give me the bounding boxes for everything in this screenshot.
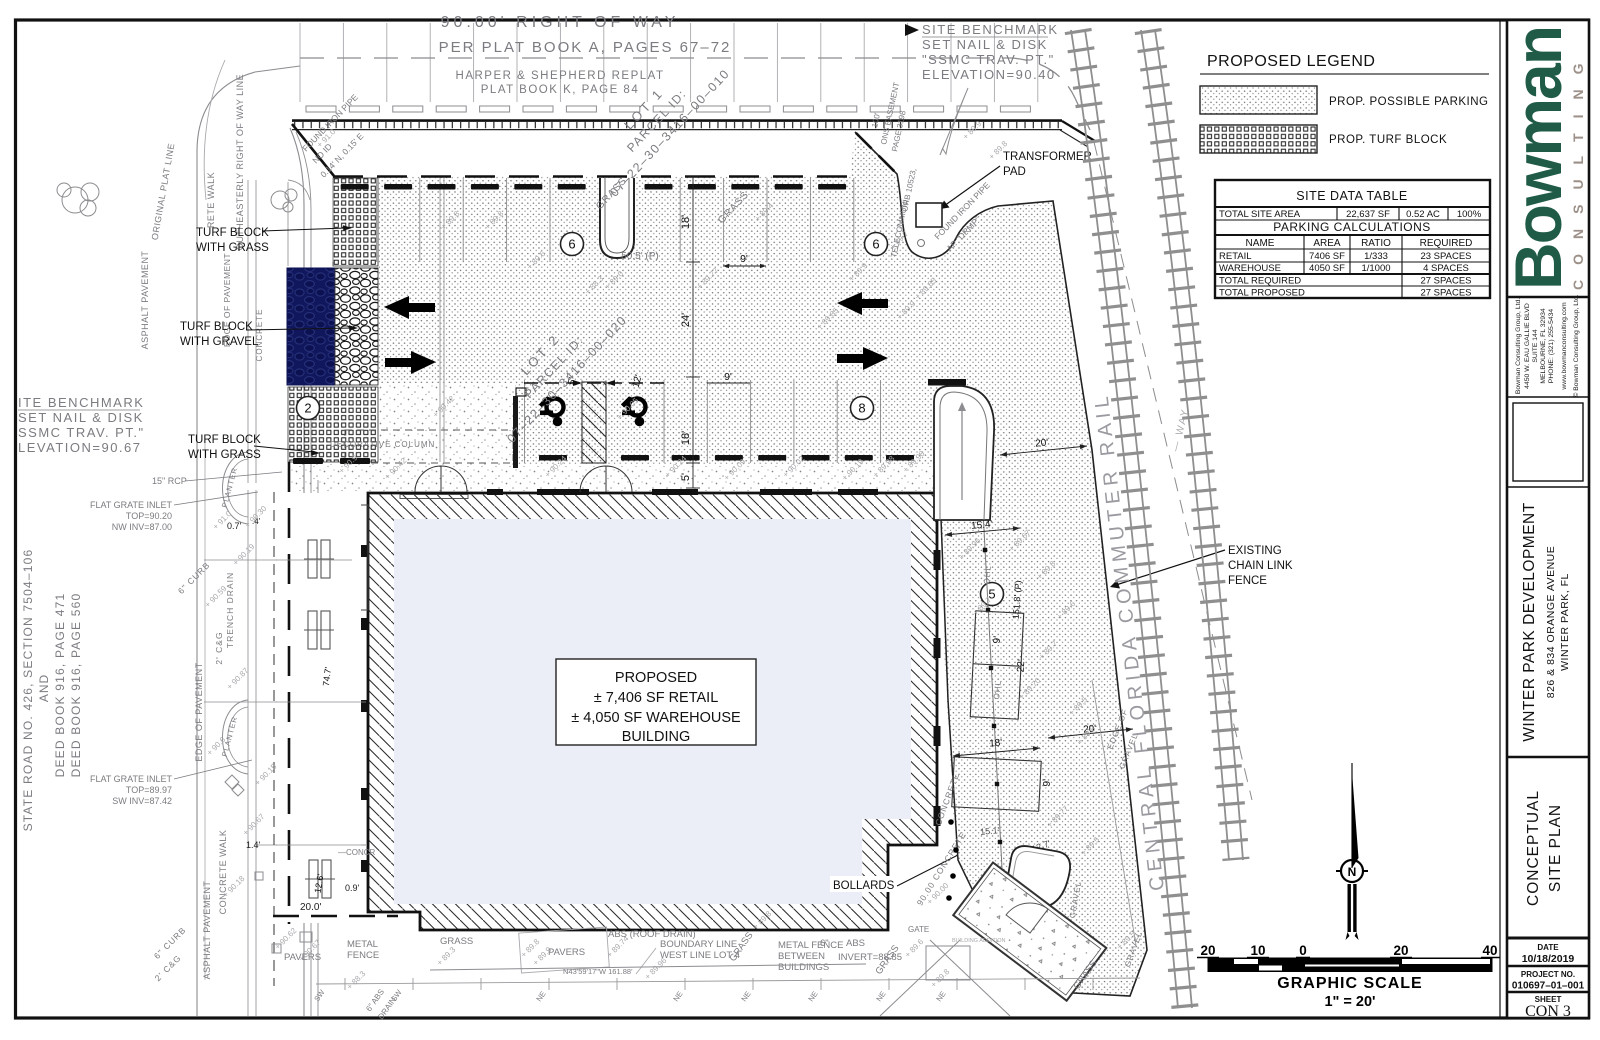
svg-text:2' C&G: 2' C&G bbox=[214, 631, 224, 664]
svg-text:ITE BENCHMARK: ITE BENCHMARK bbox=[18, 395, 144, 410]
svg-text:RETE WALK: RETE WALK bbox=[206, 172, 216, 228]
svg-text:SITE DATA TABLE: SITE DATA TABLE bbox=[1296, 189, 1407, 203]
svg-text:± 7,406 SF RETAIL: ± 7,406 SF RETAIL bbox=[594, 690, 719, 706]
svg-text:MELBOURNE, FL 32934: MELBOURNE, FL 32934 bbox=[1540, 308, 1547, 384]
svg-text:PROP. TURF BLOCK: PROP. TURF BLOCK bbox=[1329, 134, 1447, 146]
svg-text:20: 20 bbox=[1393, 943, 1408, 958]
svg-text:OUTHEASTERLY RIGHT OF WAY LINE: OUTHEASTERLY RIGHT OF WAY LINE bbox=[235, 74, 245, 250]
svg-text:EDGE OF PAVEMENT: EDGE OF PAVEMENT bbox=[194, 662, 204, 761]
svg-text:15" RCP: 15" RCP bbox=[152, 476, 187, 486]
svg-text:METAL FENCE: METAL FENCE bbox=[778, 940, 843, 951]
svg-text:NW INV=87.00: NW INV=87.00 bbox=[112, 522, 172, 532]
svg-text:PAVERS: PAVERS bbox=[548, 947, 585, 958]
svg-text:SITE PLAN: SITE PLAN bbox=[1547, 804, 1564, 892]
svg-text:WITH GRASS: WITH GRASS bbox=[188, 449, 261, 461]
svg-text:TURF BLOCK: TURF BLOCK bbox=[180, 321, 253, 333]
svg-text:PARKING CALCULATIONS: PARKING CALCULATIONS bbox=[1273, 220, 1431, 234]
svg-text:22': 22' bbox=[1016, 659, 1028, 673]
svg-text:TOP=90.20: TOP=90.20 bbox=[126, 511, 172, 521]
svg-text:ELEVATION=90.40: ELEVATION=90.40 bbox=[922, 67, 1056, 82]
svg-text:6: 6 bbox=[568, 237, 575, 252]
svg-text:PROJECT NO.: PROJECT NO. bbox=[1521, 970, 1575, 979]
svg-text:BUILDING ADDITION: BUILDING ADDITION bbox=[952, 938, 1006, 944]
svg-text:9': 9' bbox=[740, 253, 748, 265]
svg-text:90.00' RIGHT OF WAY: 90.00' RIGHT OF WAY bbox=[441, 14, 680, 31]
svg-text:CHAIN LINK: CHAIN LINK bbox=[1228, 560, 1293, 572]
svg-text:Bowman Consulting Group, Ltd.: Bowman Consulting Group, Ltd. bbox=[1515, 298, 1522, 394]
svg-text:7406 SF: 7406 SF bbox=[1309, 251, 1345, 262]
svg-text:23 SPACES: 23 SPACES bbox=[1420, 251, 1471, 262]
svg-text:22,637 SF: 22,637 SF bbox=[1346, 209, 1390, 220]
svg-text:27 SPACES: 27 SPACES bbox=[1420, 288, 1471, 299]
svg-text:1" = 20': 1" = 20' bbox=[1324, 994, 1375, 1010]
svg-text:PROPOSED: PROPOSED bbox=[615, 670, 697, 686]
svg-text:FLAT GRATE INLET: FLAT GRATE INLET bbox=[90, 500, 173, 510]
svg-text:6": 6" bbox=[820, 938, 829, 949]
svg-text:SITE BENCHMARK: SITE BENCHMARK bbox=[922, 22, 1059, 37]
svg-text:SW INV=87.42: SW INV=87.42 bbox=[112, 796, 172, 806]
svg-text:PAVERS: PAVERS bbox=[284, 952, 321, 963]
svg-text:FENCE: FENCE bbox=[347, 950, 379, 961]
svg-text:CONSULTING: CONSULTING bbox=[1570, 48, 1586, 290]
svg-text:SSMC TRAV. PT.": SSMC TRAV. PT." bbox=[18, 425, 145, 440]
svg-text:10/18/2019: 10/18/2019 bbox=[1522, 953, 1575, 965]
svg-text:METAL: METAL bbox=[347, 939, 378, 950]
svg-text:WINTER PARK, FL: WINTER PARK, FL bbox=[1559, 573, 1571, 671]
svg-text:BOLLARDS: BOLLARDS bbox=[833, 880, 895, 892]
svg-text:DECORATIVE COLUMN: DECORATIVE COLUMN bbox=[330, 440, 435, 449]
svg-text:010697–01–001: 010697–01–001 bbox=[1512, 981, 1585, 992]
svg-text:SUITE 144: SUITE 144 bbox=[1532, 329, 1539, 362]
svg-text:CON 3: CON 3 bbox=[1525, 1003, 1571, 1020]
svg-text:20': 20' bbox=[1035, 437, 1049, 449]
svg-text:BOUNDARY LINE: BOUNDARY LINE bbox=[660, 939, 737, 950]
svg-text:9': 9' bbox=[992, 636, 1004, 644]
svg-text:50.5' (P): 50.5' (P) bbox=[621, 251, 658, 262]
svg-text:ASPHALT PAVEMENT: ASPHALT PAVEMENT bbox=[202, 881, 212, 980]
svg-text:GRAPHIC SCALE: GRAPHIC SCALE bbox=[1277, 975, 1422, 992]
svg-text:15.4': 15.4' bbox=[971, 519, 993, 532]
svg-text:SET NAIL & DISK: SET NAIL & DISK bbox=[18, 410, 144, 425]
svg-text:6: 6 bbox=[872, 237, 879, 252]
svg-text:EXISTING: EXISTING bbox=[1228, 545, 1282, 557]
svg-text:TRENCH DRAIN: TRENCH DRAIN bbox=[225, 572, 235, 648]
svg-text:REQUIRED: REQUIRED bbox=[1420, 238, 1473, 249]
svg-text:PROP. POSSIBLE PARKING: PROP. POSSIBLE PARKING bbox=[1329, 96, 1489, 108]
svg-text:GATE: GATE bbox=[908, 925, 929, 934]
svg-text:WAREHOUSE: WAREHOUSE bbox=[1219, 263, 1281, 274]
svg-text:TOTAL SITE AREA: TOTAL SITE AREA bbox=[1219, 209, 1301, 220]
svg-text:2: 2 bbox=[304, 401, 311, 416]
svg-text:BETWEEN: BETWEEN bbox=[778, 951, 825, 962]
svg-text:RATIO: RATIO bbox=[1361, 238, 1391, 249]
svg-text:ASPHALT PAVEMENT: ASPHALT PAVEMENT bbox=[140, 251, 150, 350]
svg-text:24': 24' bbox=[680, 313, 692, 327]
svg-text:± 4,050 SF WAREHOUSE: ± 4,050 SF WAREHOUSE bbox=[571, 710, 741, 726]
svg-text:27 SPACES: 27 SPACES bbox=[1420, 276, 1471, 287]
svg-text:9': 9' bbox=[724, 371, 732, 383]
svg-text:WITH GRAVEL: WITH GRAVEL bbox=[180, 336, 259, 348]
svg-text:9': 9' bbox=[1042, 779, 1054, 787]
svg-text:TRANSFORMER: TRANSFORMER bbox=[1003, 151, 1092, 163]
svg-text:TOTAL REQUIRED: TOTAL REQUIRED bbox=[1219, 276, 1301, 287]
svg-text:PAD: PAD bbox=[1003, 166, 1026, 178]
svg-text:0.7': 0.7' bbox=[227, 521, 242, 531]
svg-text:8: 8 bbox=[858, 401, 865, 416]
svg-text:1/333: 1/333 bbox=[1364, 251, 1388, 262]
svg-text:0.9': 0.9' bbox=[345, 883, 360, 893]
svg-text:18': 18' bbox=[680, 431, 692, 445]
svg-text:20: 20 bbox=[1200, 943, 1215, 958]
svg-text:DEED BOOK 916, PAGE 560: DEED BOOK 916, PAGE 560 bbox=[69, 593, 83, 778]
svg-text:OHL: OHL bbox=[992, 680, 1003, 700]
svg-text:18': 18' bbox=[989, 737, 1003, 749]
svg-text:WINTER PARK DEVELOPMENT: WINTER PARK DEVELOPMENT bbox=[1521, 502, 1538, 741]
svg-text:TURF BLOCK: TURF BLOCK bbox=[188, 434, 261, 446]
svg-text:15.1': 15.1' bbox=[980, 825, 1000, 837]
svg-text:STATE ROAD NO. 426, SECTION 75: STATE ROAD NO. 426, SECTION 7504–106 bbox=[21, 549, 35, 832]
svg-text:CONCRETE WALK: CONCRETE WALK bbox=[218, 830, 228, 915]
svg-text:DATE: DATE bbox=[1537, 943, 1559, 952]
svg-text:GRASS: GRASS bbox=[440, 936, 473, 947]
svg-text:OHL: OHL bbox=[982, 565, 993, 585]
svg-text:TURF BLOCK: TURF BLOCK bbox=[196, 227, 269, 239]
svg-text:DEED BOOK 916, PAGE 471: DEED BOOK 916, PAGE 471 bbox=[53, 593, 67, 778]
svg-text:© Bowman Consulting Group, Ltd: © Bowman Consulting Group, Ltd. bbox=[1572, 294, 1580, 397]
svg-text:PHONE: (321) 255-5434: PHONE: (321) 255-5434 bbox=[1548, 309, 1555, 384]
svg-text:0: 0 bbox=[1299, 943, 1307, 958]
svg-text:100%: 100% bbox=[1457, 209, 1482, 220]
svg-text:1/1000: 1/1000 bbox=[1361, 263, 1390, 274]
svg-text:826 & 834 ORANGE AVENUE: 826 & 834 ORANGE AVENUE bbox=[1545, 546, 1557, 699]
svg-text:20.0': 20.0' bbox=[300, 902, 321, 913]
svg-text:AREA: AREA bbox=[1313, 238, 1341, 249]
svg-text:FENCE: FENCE bbox=[1228, 575, 1267, 587]
svg-text:0.52 AC: 0.52 AC bbox=[1406, 209, 1440, 220]
svg-text:PROPOSED LEGEND: PROPOSED LEGEND bbox=[1207, 53, 1375, 70]
svg-text:"SSMC TRAV. PT.": "SSMC TRAV. PT." bbox=[922, 52, 1055, 67]
svg-text:ABS: ABS bbox=[846, 938, 865, 949]
svg-text:WITH GRASS: WITH GRASS bbox=[196, 242, 269, 254]
svg-text:TOTAL PROPOSED: TOTAL PROPOSED bbox=[1219, 288, 1305, 299]
svg-text:LEVATION=90.67: LEVATION=90.67 bbox=[18, 440, 142, 455]
svg-text:CONCRETE: CONCRETE bbox=[255, 309, 264, 362]
svg-text:40: 40 bbox=[1482, 943, 1497, 958]
svg-text:HARPER & SHEPHERD REPLAT: HARPER & SHEPHERD REPLAT bbox=[456, 70, 665, 82]
svg-text:PER PLAT BOOK A, PAGES 67: PER PLAT BOOK A, PAGES 67–72 bbox=[439, 39, 732, 56]
svg-text:CONCEPTUAL: CONCEPTUAL bbox=[1525, 790, 1542, 906]
svg-text:10: 10 bbox=[1250, 943, 1265, 958]
svg-text:4050 SF: 4050 SF bbox=[1309, 263, 1345, 274]
svg-text:—CONCR: —CONCR bbox=[338, 848, 376, 857]
svg-text:SET NAIL & DISK: SET NAIL & DISK bbox=[922, 37, 1048, 52]
svg-text:1.4': 1.4' bbox=[246, 840, 261, 850]
svg-text:18': 18' bbox=[680, 215, 692, 229]
svg-text:5': 5' bbox=[680, 473, 692, 481]
svg-text:TOP=89.97: TOP=89.97 bbox=[126, 785, 172, 795]
svg-text:4 SPACES: 4 SPACES bbox=[1423, 263, 1469, 274]
svg-text:NAME: NAME bbox=[1246, 238, 1275, 249]
svg-text:www.bowmanconsulting.com: www.bowmanconsulting.com bbox=[1561, 302, 1568, 391]
svg-text:AND: AND bbox=[37, 674, 51, 702]
svg-text:BUILDING: BUILDING bbox=[622, 729, 691, 745]
svg-text:4450 W. EAU GALLIE BLVD: 4450 W. EAU GALLIE BLVD bbox=[1524, 303, 1531, 389]
svg-text:BUILDINGS: BUILDINGS bbox=[778, 962, 829, 973]
svg-text:RETAIL: RETAIL bbox=[1219, 251, 1252, 262]
svg-text:Bowman: Bowman bbox=[1501, 27, 1575, 290]
svg-text:N: N bbox=[1348, 865, 1357, 879]
svg-text:PLAT BOOK K, PAGE 84: PLAT BOOK K, PAGE 84 bbox=[481, 84, 639, 96]
svg-text:FLAT GRATE INLET: FLAT GRATE INLET bbox=[90, 774, 173, 784]
